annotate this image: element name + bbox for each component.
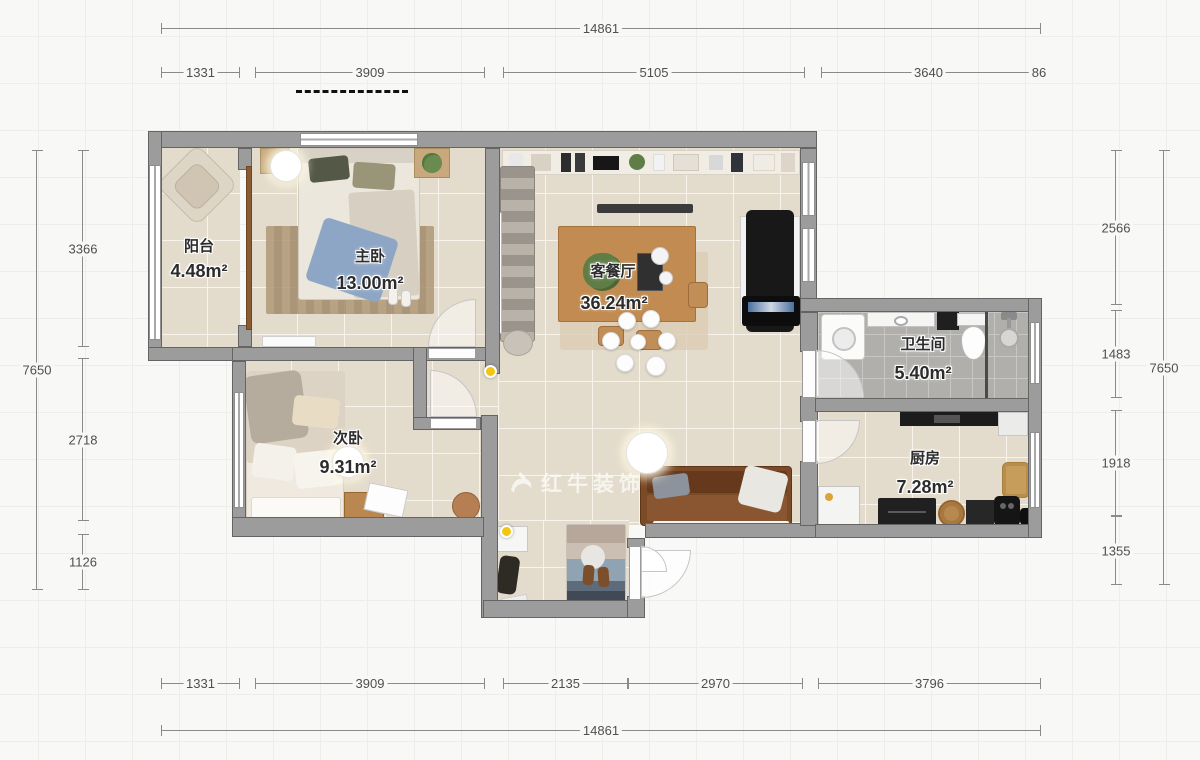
second-door[interactable] bbox=[430, 418, 477, 429]
dim-top-2: 3909 bbox=[255, 72, 485, 73]
wall-kitchen-bottom bbox=[815, 524, 1042, 538]
dim-label: 5105 bbox=[637, 65, 672, 80]
dim-bottom-1: 1331 bbox=[161, 683, 240, 684]
watermark-text: 红牛装饰 bbox=[541, 468, 645, 498]
treadmill[interactable] bbox=[738, 210, 802, 332]
wall-living-bottom bbox=[645, 523, 817, 538]
room-name-text: 厨房 bbox=[910, 447, 940, 468]
slipper bbox=[582, 565, 594, 586]
room-area-text: 7.28m² bbox=[896, 477, 953, 498]
floorplan-canvas: 14861 1331 3909 5105 3640 86 1331 3909 2… bbox=[0, 0, 1200, 760]
kitchen-counter[interactable] bbox=[878, 498, 936, 526]
dim-right-4: 1355 bbox=[1115, 516, 1116, 585]
room-name-text: 客餐厅 bbox=[590, 260, 635, 281]
shelf-item bbox=[709, 155, 723, 170]
pillow bbox=[292, 395, 341, 430]
living-window bbox=[802, 162, 815, 216]
room-name-master: 主卧 bbox=[330, 246, 410, 264]
dim-label: 3796 bbox=[912, 676, 947, 691]
second-bed[interactable] bbox=[246, 372, 344, 522]
room-name-text: 次卧 bbox=[333, 427, 363, 448]
dim-bottom-total: 14861 bbox=[161, 730, 1041, 731]
wall-bath-left bbox=[800, 312, 818, 352]
dim-label: 1483 bbox=[1099, 347, 1134, 362]
wall-master-living-divider bbox=[485, 148, 500, 374]
projector-screen[interactable] bbox=[597, 204, 693, 213]
room-area-kitchen: 7.28m² bbox=[891, 477, 959, 497]
room-name-balcony: 阳台 bbox=[159, 236, 239, 254]
master-window bbox=[300, 133, 418, 146]
room-name-living: 客餐厅 bbox=[568, 261, 658, 279]
wall-bath-kitchen-divider bbox=[815, 398, 1042, 412]
dim-label: 2718 bbox=[66, 432, 101, 447]
treadmill-screen bbox=[748, 302, 794, 312]
pillow bbox=[352, 162, 396, 191]
second-window bbox=[234, 392, 244, 508]
shelf-item bbox=[561, 153, 571, 172]
dim-label: 7650 bbox=[1147, 360, 1182, 375]
bathroom-window bbox=[1030, 322, 1040, 384]
plant bbox=[629, 154, 645, 170]
dim-label: 2135 bbox=[548, 676, 583, 691]
bath-door[interactable] bbox=[802, 350, 816, 398]
dim-top-1: 1331 bbox=[161, 72, 240, 73]
dim-right-total: 7650 bbox=[1163, 150, 1164, 585]
room-area-text: 9.31m² bbox=[319, 457, 376, 478]
watermark-bull-icon bbox=[508, 470, 534, 496]
plan-marker[interactable] bbox=[484, 365, 497, 378]
cutting-board bbox=[938, 500, 965, 527]
shelf-item bbox=[731, 153, 743, 172]
room-name-text: 卫生间 bbox=[900, 333, 945, 354]
shower-glass-partition bbox=[985, 312, 988, 400]
dim-top-total: 14861 bbox=[161, 28, 1041, 29]
entry-door[interactable] bbox=[629, 546, 641, 600]
dim-label: 2566 bbox=[1099, 220, 1134, 235]
room-area-text: 4.48m² bbox=[170, 261, 227, 282]
dim-left-total: 7650 bbox=[36, 150, 37, 590]
pillow bbox=[308, 155, 350, 183]
room-area-living: 36.24m² bbox=[570, 293, 658, 313]
dim-top-3: 5105 bbox=[503, 72, 805, 73]
dim-label: 1918 bbox=[1099, 456, 1134, 471]
dim-label: 1126 bbox=[66, 555, 100, 570]
room-name-bath: 卫生间 bbox=[888, 335, 958, 352]
dashed-line bbox=[296, 90, 408, 93]
dim-top-5: 86 bbox=[1036, 72, 1042, 73]
dining-chair[interactable] bbox=[688, 282, 708, 308]
dim-bottom-2: 3909 bbox=[255, 683, 485, 684]
wall-second-bottom bbox=[232, 517, 484, 537]
dim-label: 86 bbox=[1029, 65, 1049, 80]
room-area-text: 5.40m² bbox=[894, 363, 951, 384]
plant bbox=[422, 153, 442, 173]
dim-bottom-4: 2970 bbox=[628, 683, 803, 684]
room-area-text: 36.24m² bbox=[580, 293, 647, 314]
room-area-second: 9.31m² bbox=[316, 457, 380, 477]
wall-top bbox=[148, 131, 817, 148]
shower-head[interactable] bbox=[999, 328, 1019, 348]
bath-counter[interactable] bbox=[867, 312, 935, 327]
kitchen-door[interactable] bbox=[802, 420, 816, 463]
dim-label: 14861 bbox=[580, 21, 622, 36]
dim-right-3: 1918 bbox=[1115, 410, 1116, 516]
low-shelf[interactable] bbox=[262, 336, 316, 347]
shelf-item bbox=[575, 153, 585, 172]
coffee-machine[interactable] bbox=[994, 496, 1020, 526]
kitchen-window bbox=[1030, 432, 1040, 508]
pillow bbox=[251, 442, 297, 482]
dim-bottom-5: 3796 bbox=[818, 683, 1041, 684]
dim-label: 7650 bbox=[20, 363, 55, 378]
basket bbox=[1002, 462, 1030, 498]
shelf-item bbox=[673, 154, 699, 171]
room-name-text: 阳台 bbox=[184, 235, 214, 256]
chandelier[interactable] bbox=[602, 310, 674, 378]
round-pouf[interactable] bbox=[452, 492, 480, 520]
sideboard[interactable] bbox=[502, 150, 800, 175]
washer-drum bbox=[832, 327, 856, 351]
dim-label: 1331 bbox=[183, 676, 218, 691]
bath-cabinet bbox=[937, 312, 959, 330]
room-area-master: 13.00m² bbox=[325, 273, 415, 293]
dim-label: 3366 bbox=[66, 241, 101, 256]
stove[interactable] bbox=[966, 500, 994, 526]
wall-kitchen-left bbox=[800, 461, 818, 526]
dim-left-1: 3366 bbox=[82, 150, 83, 347]
plate bbox=[659, 271, 673, 285]
wall-bath-top bbox=[800, 298, 1042, 312]
dim-left-2: 2718 bbox=[82, 358, 83, 521]
fridge[interactable] bbox=[818, 486, 860, 526]
dim-label: 2970 bbox=[698, 676, 733, 691]
entry-rug bbox=[566, 524, 626, 602]
bed-foot-board bbox=[251, 497, 341, 519]
shelf-item bbox=[781, 153, 795, 172]
dim-label: 1331 bbox=[183, 65, 218, 80]
room-area-text: 13.00m² bbox=[336, 273, 403, 294]
room-area-balcony: 4.48m² bbox=[159, 261, 239, 281]
room-area-bath: 5.40m² bbox=[886, 363, 960, 383]
slipper bbox=[597, 567, 609, 588]
sofa[interactable] bbox=[640, 466, 792, 526]
sink bbox=[894, 316, 908, 326]
master-door[interactable] bbox=[428, 348, 476, 359]
watermark: 红牛装饰 bbox=[508, 468, 645, 498]
room-name-text: 主卧 bbox=[355, 245, 385, 266]
shelf-item bbox=[653, 154, 665, 171]
balcony-sliding-door[interactable] bbox=[246, 166, 252, 330]
dim-label: 3640 bbox=[911, 65, 946, 80]
floor-cushion bbox=[503, 330, 533, 356]
lounge-chair-cushion bbox=[172, 161, 223, 212]
dim-label: 3909 bbox=[353, 65, 388, 80]
dim-bottom-3: 2135 bbox=[503, 683, 628, 684]
dim-right-2: 1483 bbox=[1115, 310, 1116, 398]
shelf-item bbox=[753, 154, 775, 171]
wall-entry-bottom bbox=[483, 600, 645, 618]
corner-counter bbox=[998, 412, 1028, 436]
dim-right-1: 2566 bbox=[1115, 150, 1116, 305]
plan-marker[interactable] bbox=[500, 525, 513, 538]
nightstand[interactable] bbox=[414, 148, 450, 178]
range-hood bbox=[934, 415, 960, 423]
living-window bbox=[802, 228, 815, 282]
dim-label: 14861 bbox=[580, 723, 622, 738]
room-name-kitchen: 厨房 bbox=[893, 449, 957, 466]
fridge-handle bbox=[825, 493, 833, 501]
room-name-second: 次卧 bbox=[310, 429, 386, 446]
dim-label: 1355 bbox=[1099, 543, 1134, 558]
dim-left-3: 1126 bbox=[82, 534, 83, 590]
ceiling-light[interactable] bbox=[270, 150, 302, 182]
dim-top-4: 3640 bbox=[821, 72, 1036, 73]
dim-label: 3909 bbox=[353, 676, 388, 691]
counter-handle bbox=[888, 511, 926, 513]
hall-cabinet[interactable] bbox=[500, 166, 535, 342]
shelf-item bbox=[593, 156, 619, 170]
kitchen-top-counter[interactable] bbox=[900, 412, 998, 426]
